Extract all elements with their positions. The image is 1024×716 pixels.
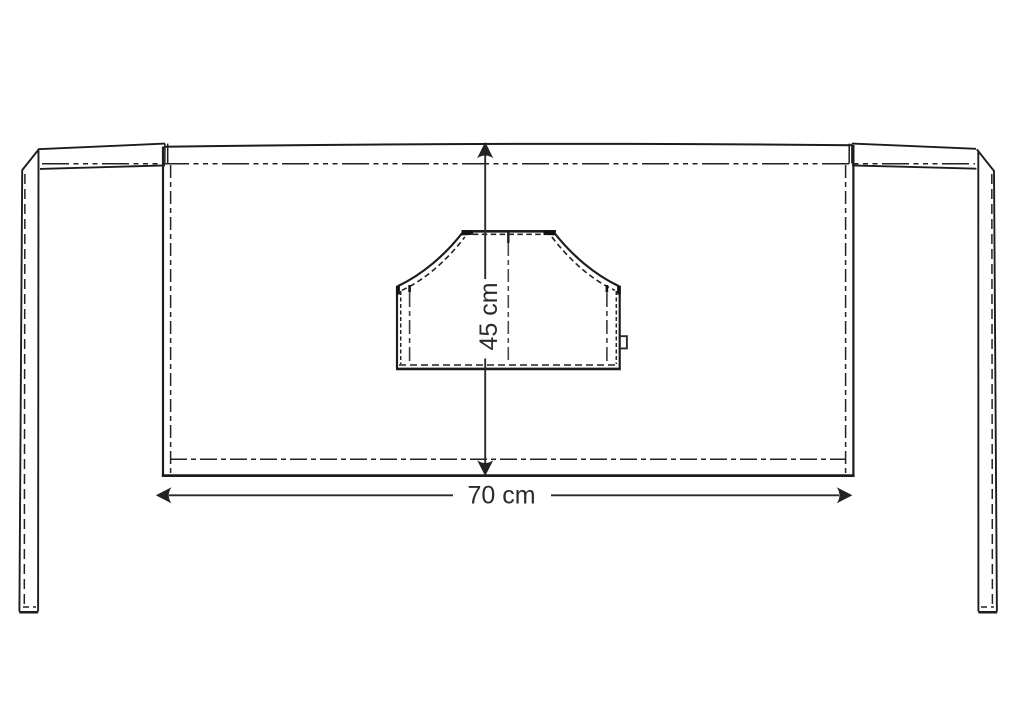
svg-text:70 cm: 70 cm <box>468 482 536 510</box>
svg-text:45 cm: 45 cm <box>475 282 503 350</box>
